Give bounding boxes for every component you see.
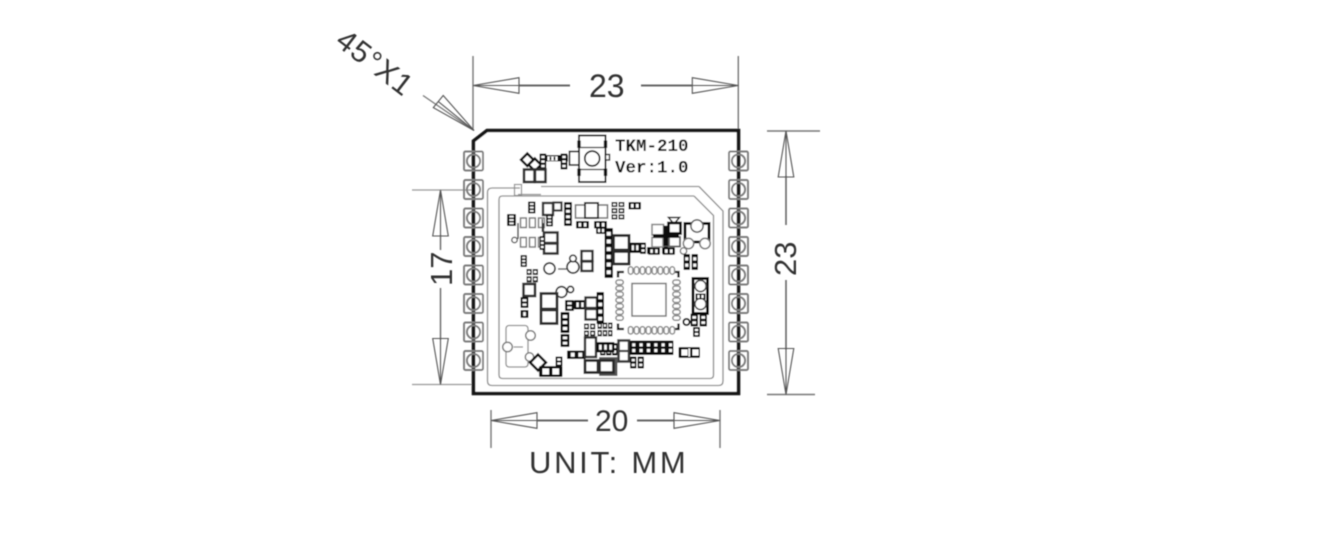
svg-text:UNIT: MM: UNIT: MM — [529, 445, 688, 480]
svg-text:23: 23 — [768, 242, 803, 276]
svg-text:17: 17 — [424, 252, 459, 286]
svg-text:Ver:1.0: Ver:1.0 — [615, 159, 689, 179]
svg-text:20: 20 — [595, 405, 628, 438]
svg-text:TKM-210: TKM-210 — [615, 137, 689, 157]
svg-text:23: 23 — [589, 68, 625, 104]
